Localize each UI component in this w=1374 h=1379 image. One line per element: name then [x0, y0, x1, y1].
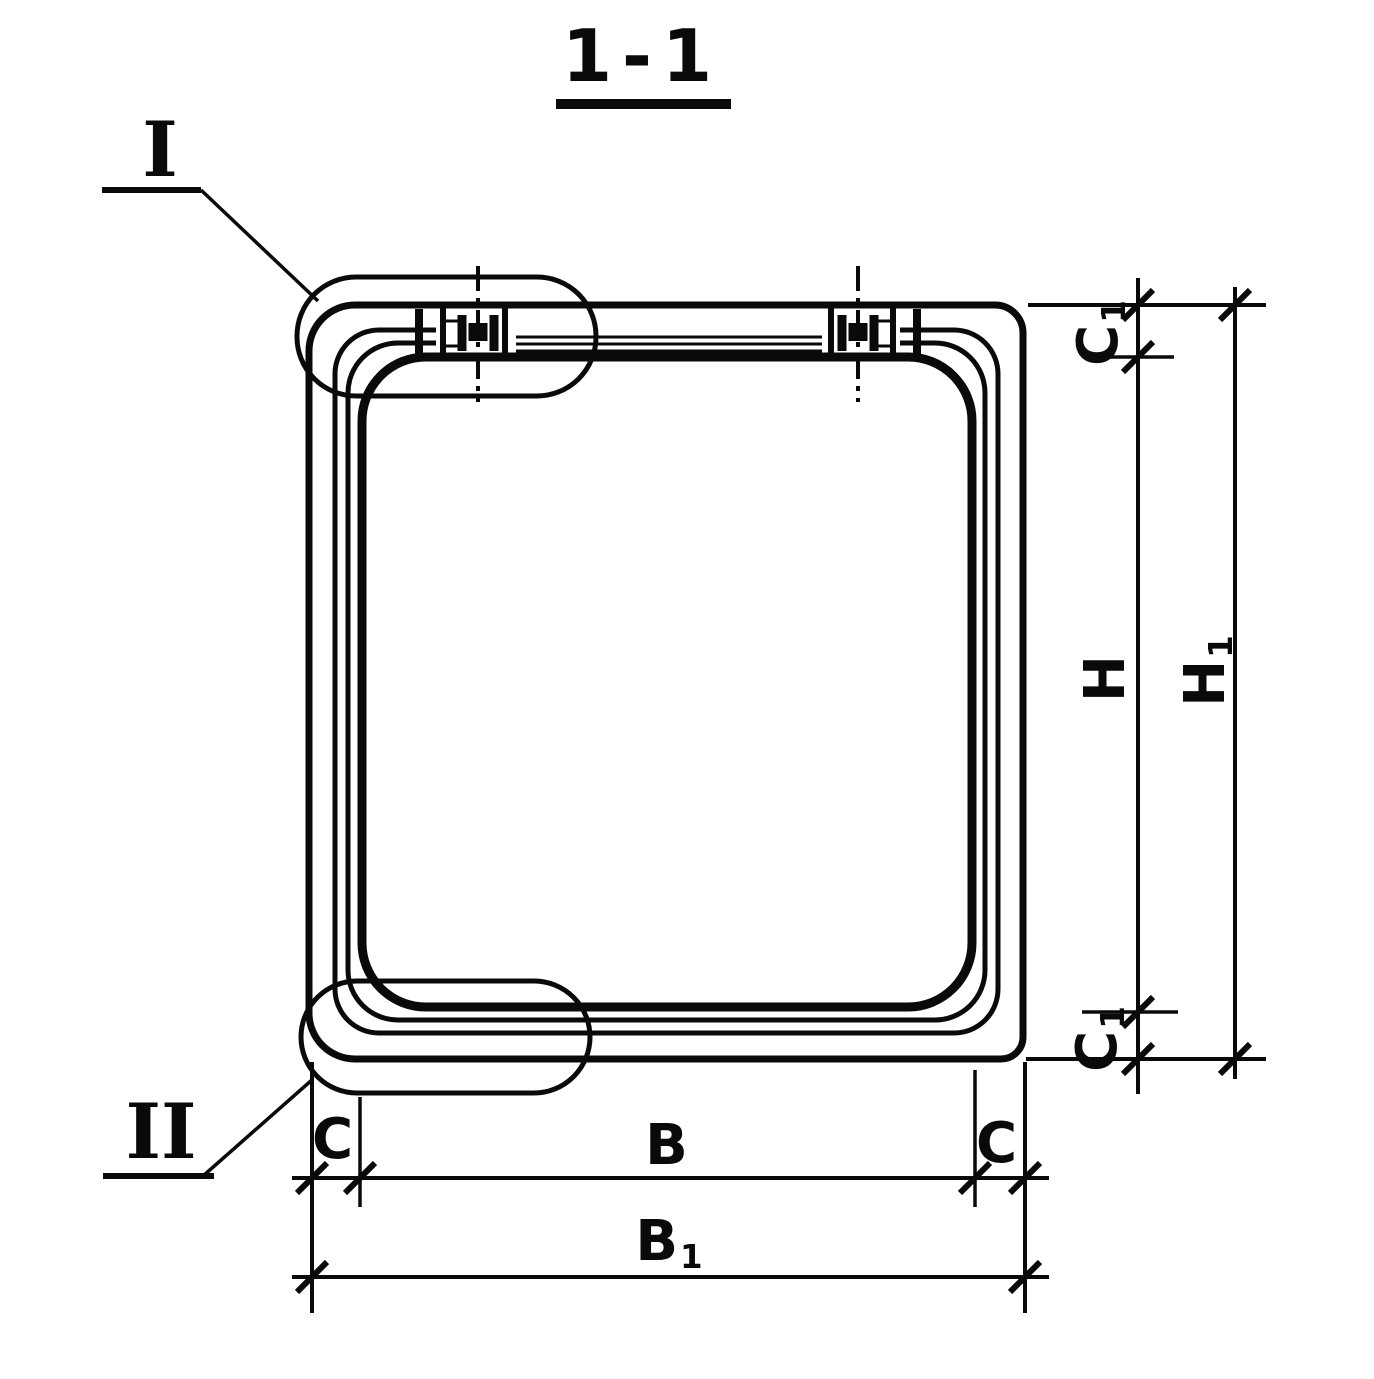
- dim-label-h: H: [1078, 654, 1134, 702]
- dimension-lines-bottom: [292, 1062, 1049, 1313]
- dim-label-c-left: C: [312, 1112, 354, 1168]
- joint-left: [419, 266, 505, 402]
- leader-line-1: [201, 190, 318, 301]
- page-title: 1-1: [562, 20, 722, 92]
- dim-label-c-right: C: [976, 1116, 1018, 1172]
- dim-label-h1: H1: [1178, 635, 1234, 706]
- dim-label-c1-bottom: C1: [1070, 1006, 1126, 1072]
- wall-contour-3: [348, 343, 985, 1020]
- detail-callout-2: II: [125, 1094, 196, 1170]
- leader-line-2: [203, 1079, 313, 1176]
- outer-contour: [309, 305, 1023, 1059]
- dim-label-b: B: [645, 1118, 689, 1174]
- link-cross-section: [309, 305, 1023, 1059]
- detail-callout-1: I: [142, 112, 178, 188]
- top-seam-lines: [516, 337, 822, 351]
- technical-drawing-sheet: 1-1 I II C1 H H1 C1 C B C B1: [0, 0, 1374, 1379]
- dim-label-c1-top: C1: [1071, 300, 1127, 366]
- wall-contour-2: [335, 330, 998, 1033]
- joint-right: [831, 266, 917, 402]
- inner-contour: [362, 357, 972, 1007]
- section-title-text: 1-1: [562, 14, 722, 98]
- dim-label-b1: B1: [635, 1214, 702, 1270]
- detail-balloon-2: [301, 981, 590, 1093]
